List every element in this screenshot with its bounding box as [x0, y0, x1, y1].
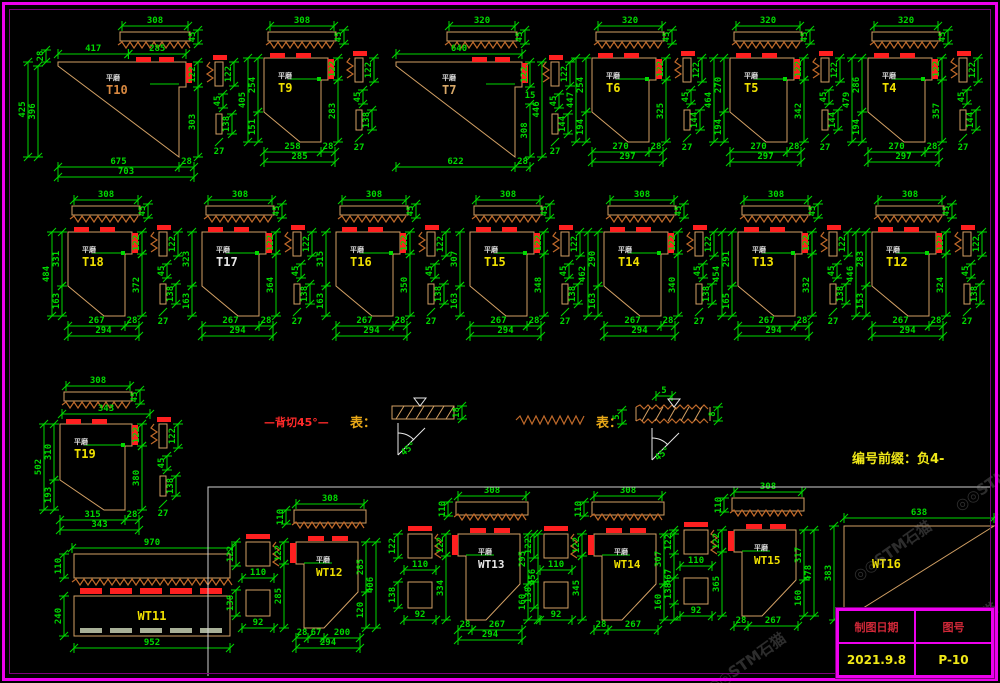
svg-text:平磨: 平磨 [882, 71, 896, 80]
svg-text:110: 110 [688, 556, 704, 566]
svg-text:308: 308 [322, 494, 338, 504]
svg-text:144: 144 [690, 111, 700, 128]
svg-text:45: 45 [188, 32, 198, 43]
detail-t15: 30845平磨T15307163122348267282941224513827 [450, 190, 585, 341]
svg-text:45: 45 [334, 32, 344, 43]
svg-text:267: 267 [765, 616, 781, 626]
svg-text:294: 294 [229, 326, 246, 336]
svg-text:28: 28 [651, 142, 662, 152]
svg-text:291: 291 [722, 251, 732, 267]
svg-text:294: 294 [95, 326, 112, 336]
svg-text:325: 325 [656, 103, 666, 119]
svg-text:315: 315 [316, 251, 326, 267]
svg-text:WT15: WT15 [754, 554, 781, 567]
svg-text:27: 27 [158, 317, 169, 327]
svg-text:122: 122 [830, 62, 840, 78]
svg-text:294: 294 [631, 326, 648, 336]
svg-text:144: 144 [558, 115, 568, 132]
svg-text:122: 122 [968, 62, 978, 78]
svg-text:308: 308 [500, 190, 516, 200]
back-cut-note: —背切45°— [264, 414, 329, 430]
svg-text:267: 267 [88, 316, 104, 326]
svg-text:151: 151 [248, 119, 258, 135]
svg-text:122: 122 [436, 537, 446, 553]
svg-text:294: 294 [363, 326, 380, 336]
svg-text:T19: T19 [74, 447, 96, 461]
svg-text:45: 45 [353, 92, 363, 103]
svg-text:T18: T18 [82, 255, 104, 269]
svg-text:405: 405 [238, 92, 248, 108]
svg-text:462: 462 [578, 266, 588, 282]
svg-text:122: 122 [668, 235, 678, 251]
svg-text:平磨: 平磨 [484, 245, 498, 254]
svg-text:5: 5 [661, 386, 666, 396]
svg-text:27: 27 [962, 317, 973, 327]
svg-text:45°: 45° [399, 440, 418, 458]
svg-text:122: 122 [664, 534, 674, 550]
svg-text:45: 45 [130, 392, 140, 403]
svg-text:122: 122 [274, 545, 284, 561]
svg-text:T12: T12 [886, 255, 908, 269]
svg-text:45: 45 [938, 32, 948, 43]
svg-text:308: 308 [366, 190, 382, 200]
svg-text:8: 8 [708, 411, 718, 416]
svg-text:28: 28 [596, 620, 607, 630]
svg-text:92: 92 [691, 606, 702, 616]
svg-text:479: 479 [842, 92, 852, 108]
svg-text:331: 331 [52, 251, 62, 267]
svg-text:122: 122 [572, 537, 582, 553]
svg-text:45: 45 [272, 206, 282, 217]
svg-text:502: 502 [34, 459, 44, 475]
svg-text:45: 45 [549, 96, 559, 107]
svg-text:122: 122 [168, 236, 178, 252]
svg-text:27: 27 [828, 317, 839, 327]
svg-text:320: 320 [760, 16, 776, 26]
svg-text:28: 28 [261, 316, 272, 326]
svg-text:45: 45 [961, 266, 971, 277]
svg-text:45: 45 [674, 206, 684, 217]
svg-text:285: 285 [291, 152, 307, 162]
svg-text:138: 138 [434, 286, 444, 302]
svg-text:T6: T6 [606, 81, 620, 95]
svg-text:138: 138 [226, 595, 236, 611]
svg-text:372: 372 [132, 277, 142, 293]
svg-text:267: 267 [758, 316, 774, 326]
svg-text:45: 45 [540, 206, 550, 217]
svg-text:122: 122 [168, 428, 178, 444]
svg-text:952: 952 [144, 638, 160, 648]
detail-t10: 30845417285平磨T10284253961223036752870312… [18, 16, 239, 182]
cad-canvas: 30845417285平磨T10284253961223036752870312… [0, 0, 1000, 683]
svg-text:122: 122 [570, 236, 580, 252]
detail-t14: 30845平磨T14462290163122340267282941224513… [578, 190, 719, 341]
svg-text:297: 297 [895, 152, 911, 162]
svg-text:297: 297 [619, 152, 635, 162]
svg-text:267: 267 [490, 316, 506, 326]
svg-text:138: 138 [568, 286, 578, 302]
svg-text:45: 45 [800, 32, 810, 43]
svg-text:122: 122 [132, 235, 142, 251]
svg-text:308: 308 [232, 190, 248, 200]
svg-text:122: 122 [932, 61, 942, 77]
svg-text:320: 320 [622, 16, 638, 26]
svg-text:163: 163 [450, 293, 460, 309]
svg-text:28: 28 [927, 142, 938, 152]
svg-text:122: 122 [560, 66, 570, 82]
svg-text:380: 380 [132, 470, 142, 486]
svg-text:110: 110 [438, 501, 448, 517]
svg-text:45: 45 [157, 266, 167, 277]
svg-text:平磨: 平磨 [350, 245, 364, 254]
svg-text:122: 122 [266, 235, 276, 251]
svg-text:110: 110 [714, 497, 724, 513]
svg-text:285: 285 [356, 559, 366, 575]
svg-text:153: 153 [856, 293, 866, 309]
title-block-sheet-header: 图号 [915, 610, 992, 643]
svg-text:平磨: 平磨 [754, 543, 768, 552]
svg-text:110: 110 [54, 558, 64, 574]
svg-text:122: 122 [936, 235, 946, 251]
svg-text:417: 417 [85, 44, 101, 54]
svg-text:138: 138 [836, 286, 846, 302]
svg-text:18: 18 [452, 407, 462, 418]
svg-text:343: 343 [91, 520, 107, 530]
svg-text:122: 122 [328, 61, 338, 77]
svg-text:144: 144 [828, 111, 838, 128]
svg-text:308: 308 [98, 190, 114, 200]
svg-text:285: 285 [274, 588, 284, 604]
svg-text:T4: T4 [882, 81, 896, 95]
svg-text:45: 45 [808, 206, 818, 217]
svg-text:122: 122 [302, 236, 312, 252]
detail-t18: 30845平磨T18484331163122372267282941224513… [42, 190, 183, 341]
svg-text:193: 193 [44, 487, 54, 503]
svg-text:160: 160 [794, 590, 804, 606]
svg-text:28: 28 [663, 316, 674, 326]
svg-text:27: 27 [158, 509, 169, 519]
svg-text:28: 28 [529, 316, 540, 326]
svg-text:163: 163 [588, 293, 598, 309]
detail-t5: 32045平磨T54642701941223422702829712245144… [704, 16, 845, 167]
svg-text:28: 28 [36, 51, 46, 62]
svg-text:307: 307 [450, 251, 460, 267]
svg-text:T15: T15 [484, 255, 506, 269]
svg-text:45: 45 [213, 96, 223, 107]
svg-text:平磨: 平磨 [614, 547, 628, 556]
svg-text:383: 383 [824, 565, 834, 581]
svg-text:110: 110 [250, 568, 266, 578]
svg-text:45: 45 [957, 92, 967, 103]
svg-text:286: 286 [852, 77, 862, 93]
svg-text:平磨: 平磨 [752, 245, 766, 254]
svg-text:122: 122 [704, 236, 714, 252]
svg-text:27: 27 [292, 317, 303, 327]
svg-text:45: 45 [291, 266, 301, 277]
svg-text:194: 194 [576, 118, 586, 135]
svg-text:675: 675 [110, 157, 126, 167]
detail-wt15: 12211013892308110平磨WT1512236531747816028… [664, 482, 819, 631]
svg-text:320: 320 [474, 16, 490, 26]
detail-wt14: 12211013892308110平磨WT1412234530746716028… [524, 486, 679, 635]
svg-text:138: 138 [702, 286, 712, 302]
svg-text:342: 342 [794, 103, 804, 119]
svg-text:163: 163 [316, 293, 326, 309]
detail-t16: 30845平磨T16315163122350267282941224513827 [316, 190, 451, 341]
svg-text:267: 267 [489, 620, 505, 630]
svg-text:138: 138 [166, 478, 176, 494]
svg-text:323: 323 [182, 251, 192, 267]
detail-t9: 30845平磨T94052541511222832582828512245138… [238, 16, 379, 167]
svg-text:27: 27 [354, 143, 365, 153]
svg-text:122: 122 [520, 66, 530, 82]
svg-text:345: 345 [572, 580, 582, 596]
svg-text:350: 350 [400, 277, 410, 293]
svg-text:27: 27 [550, 147, 561, 157]
svg-text:283: 283 [328, 103, 338, 119]
svg-text:110: 110 [574, 501, 584, 517]
detail-wt12: 12211013892308110平磨WT1212228528540612028… [226, 494, 381, 653]
svg-text:343: 343 [98, 404, 114, 414]
svg-text:T7: T7 [442, 83, 456, 97]
detail-t13: 30845平磨T13454291165122332267282941224513… [712, 190, 853, 341]
svg-text:122: 122 [802, 235, 812, 251]
svg-text:365: 365 [712, 576, 722, 592]
svg-text:67: 67 [311, 628, 322, 638]
svg-text:122: 122 [226, 546, 236, 562]
svg-text:308: 308 [768, 190, 784, 200]
svg-text:平磨: 平磨 [886, 245, 900, 254]
svg-text:297: 297 [757, 152, 773, 162]
svg-text:364: 364 [266, 276, 276, 293]
svg-text:15: 15 [525, 91, 536, 101]
svg-text:464: 464 [704, 91, 714, 108]
svg-text:28: 28 [181, 157, 192, 167]
svg-text:28: 28 [797, 316, 808, 326]
svg-text:200: 200 [334, 628, 350, 638]
svg-text:27: 27 [694, 317, 705, 327]
svg-text:28: 28 [460, 620, 471, 630]
svg-text:307: 307 [654, 551, 664, 567]
svg-text:163: 163 [182, 293, 192, 309]
svg-text:28: 28 [127, 316, 138, 326]
svg-text:270: 270 [612, 142, 628, 152]
svg-text:28: 28 [323, 142, 334, 152]
svg-text:T17: T17 [216, 255, 238, 269]
svg-text:T16: T16 [350, 255, 372, 269]
svg-text:425: 425 [18, 101, 28, 117]
svg-text:45: 45 [425, 266, 435, 277]
svg-text:T13: T13 [752, 255, 774, 269]
svg-text:45: 45 [942, 206, 952, 217]
title-block-sheet-value: P-10 [915, 643, 992, 676]
svg-text:447: 447 [566, 92, 576, 108]
svg-text:平磨: 平磨 [74, 437, 88, 446]
svg-text:285: 285 [149, 44, 165, 54]
cut-symbol-45: 1845° [392, 398, 467, 458]
svg-text:平磨: 平磨 [216, 245, 230, 254]
svg-text:T10: T10 [106, 83, 128, 97]
svg-text:122: 122 [794, 61, 804, 77]
detail-t17: 30845平磨T17323163122364267282941224513827 [182, 190, 317, 341]
svg-text:138: 138 [970, 286, 980, 302]
svg-text:T9: T9 [278, 81, 292, 95]
svg-text:平磨: 平磨 [744, 71, 758, 80]
svg-text:28: 28 [127, 510, 138, 520]
svg-text:122: 122 [188, 66, 198, 82]
svg-text:308: 308 [520, 122, 530, 138]
svg-text:294: 294 [497, 326, 514, 336]
svg-text:27: 27 [820, 143, 831, 153]
svg-text:267: 267 [222, 316, 238, 326]
svg-text:122: 122 [364, 62, 374, 78]
svg-text:45: 45 [515, 32, 525, 43]
svg-text:138: 138 [222, 116, 232, 132]
svg-text:290: 290 [588, 251, 598, 267]
svg-text:45: 45 [693, 266, 703, 277]
svg-text:317: 317 [794, 547, 804, 563]
svg-text:320: 320 [898, 16, 914, 26]
svg-text:138: 138 [524, 587, 534, 603]
svg-text:357: 357 [932, 103, 942, 119]
detail-t4: 32045平磨T44792861941223572702829712245144… [842, 16, 983, 167]
svg-text:45: 45 [819, 92, 829, 103]
svg-text:28: 28 [931, 316, 942, 326]
svg-text:平磨: 平磨 [618, 245, 632, 254]
svg-text:110: 110 [548, 560, 564, 570]
svg-text:254: 254 [248, 76, 258, 93]
svg-text:308: 308 [902, 190, 918, 200]
svg-text:270: 270 [750, 142, 766, 152]
svg-text:340: 340 [668, 277, 678, 293]
svg-text:WT14: WT14 [614, 558, 641, 571]
svg-text:45: 45 [559, 266, 569, 277]
svg-text:703: 703 [118, 167, 134, 177]
svg-text:303: 303 [188, 114, 198, 130]
detail-t6: 32045平磨T64472541941223252702829712245144… [566, 16, 707, 167]
svg-text:254: 254 [576, 76, 586, 93]
svg-text:122: 122 [712, 533, 722, 549]
svg-text:122: 122 [838, 236, 848, 252]
svg-text:45: 45 [827, 266, 837, 277]
detail-t12: 30845平磨T12446283153122324267282941224513… [846, 190, 987, 341]
svg-text:122: 122 [400, 235, 410, 251]
svg-text:27: 27 [214, 147, 225, 157]
svg-text:294: 294 [482, 630, 499, 640]
svg-text:27: 27 [426, 317, 437, 327]
svg-text:WT12: WT12 [316, 566, 343, 579]
svg-text:122: 122 [436, 236, 446, 252]
svg-text:267: 267 [625, 620, 641, 630]
svg-text:平磨: 平磨 [106, 73, 120, 82]
svg-text:122: 122 [224, 66, 234, 82]
svg-text:28: 28 [736, 616, 747, 626]
svg-text:平磨: 平磨 [82, 245, 96, 254]
svg-text:258: 258 [284, 142, 300, 152]
svg-text:WT13: WT13 [478, 558, 505, 571]
svg-text:28: 28 [789, 142, 800, 152]
svg-text:平磨: 平磨 [278, 71, 292, 80]
svg-text:267: 267 [356, 316, 372, 326]
svg-text:92: 92 [551, 610, 562, 620]
svg-text:310: 310 [44, 444, 54, 460]
svg-text:144: 144 [966, 111, 976, 128]
svg-text:308: 308 [634, 190, 650, 200]
svg-text:28: 28 [517, 157, 528, 167]
svg-text:308: 308 [294, 16, 310, 26]
svg-text:294: 294 [899, 326, 916, 336]
svg-text:122: 122 [524, 538, 534, 554]
svg-text:45: 45 [662, 32, 672, 43]
svg-text:45: 45 [157, 458, 167, 469]
svg-text:WT11: WT11 [138, 609, 167, 623]
svg-text:27: 27 [682, 143, 693, 153]
svg-text:45: 45 [138, 206, 148, 217]
svg-text:165: 165 [722, 293, 732, 309]
svg-text:484: 484 [42, 265, 52, 282]
svg-text:446: 446 [846, 266, 856, 282]
svg-text:T14: T14 [618, 255, 640, 269]
svg-text:110: 110 [276, 509, 286, 525]
svg-text:308: 308 [147, 16, 163, 26]
svg-text:122: 122 [388, 538, 398, 554]
svg-text:平磨: 平磨 [442, 73, 456, 82]
svg-text:640: 640 [451, 44, 467, 54]
svg-text:334: 334 [436, 579, 446, 596]
detail-wt11: 970WT11110240952 [54, 538, 236, 653]
svg-text:122: 122 [972, 236, 982, 252]
svg-text:308: 308 [90, 376, 106, 386]
svg-text:970: 970 [144, 538, 160, 548]
svg-text:122: 122 [132, 427, 142, 443]
title-block-date-value: 2021.9.8 [838, 643, 915, 676]
svg-text:138: 138 [166, 286, 176, 302]
svg-text:45°: 45° [653, 445, 672, 463]
svg-text:平磨: 平磨 [316, 555, 330, 564]
legend-symbol2-label: 表： [596, 412, 622, 431]
number-prefix-note: 编号前缀：负4- [852, 448, 944, 467]
svg-text:138: 138 [300, 286, 310, 302]
svg-text:122: 122 [534, 235, 544, 251]
svg-text:平磨: 平磨 [478, 547, 492, 556]
svg-text:348: 348 [534, 277, 544, 293]
svg-text:160: 160 [654, 594, 664, 610]
svg-text:122: 122 [656, 61, 666, 77]
svg-text:120: 120 [356, 602, 366, 618]
svg-text:45: 45 [681, 92, 691, 103]
svg-text:294: 294 [765, 326, 782, 336]
svg-text:396: 396 [28, 103, 38, 119]
svg-text:194: 194 [714, 118, 724, 135]
legend-symbol1-label: 表： [350, 412, 376, 431]
cad-drawing-sheet: 30845417285平磨T10284253961223036752870312… [0, 0, 1000, 683]
svg-text:92: 92 [415, 610, 426, 620]
title-block-date-header: 制图日期 [838, 610, 915, 643]
svg-text:27: 27 [560, 317, 571, 327]
svg-text:267: 267 [624, 316, 640, 326]
svg-text:622: 622 [447, 157, 463, 167]
title-block: 制图日期 图号 2021.9.8 P-10 [836, 608, 994, 678]
svg-text:138: 138 [362, 112, 372, 128]
svg-text:163: 163 [52, 293, 62, 309]
svg-text:283: 283 [856, 251, 866, 267]
svg-text:92: 92 [253, 618, 264, 628]
svg-text:315: 315 [84, 510, 100, 520]
svg-text:28: 28 [297, 628, 308, 638]
svg-text:454: 454 [712, 265, 722, 282]
svg-text:270: 270 [888, 142, 904, 152]
svg-text:平磨: 平磨 [606, 71, 620, 80]
